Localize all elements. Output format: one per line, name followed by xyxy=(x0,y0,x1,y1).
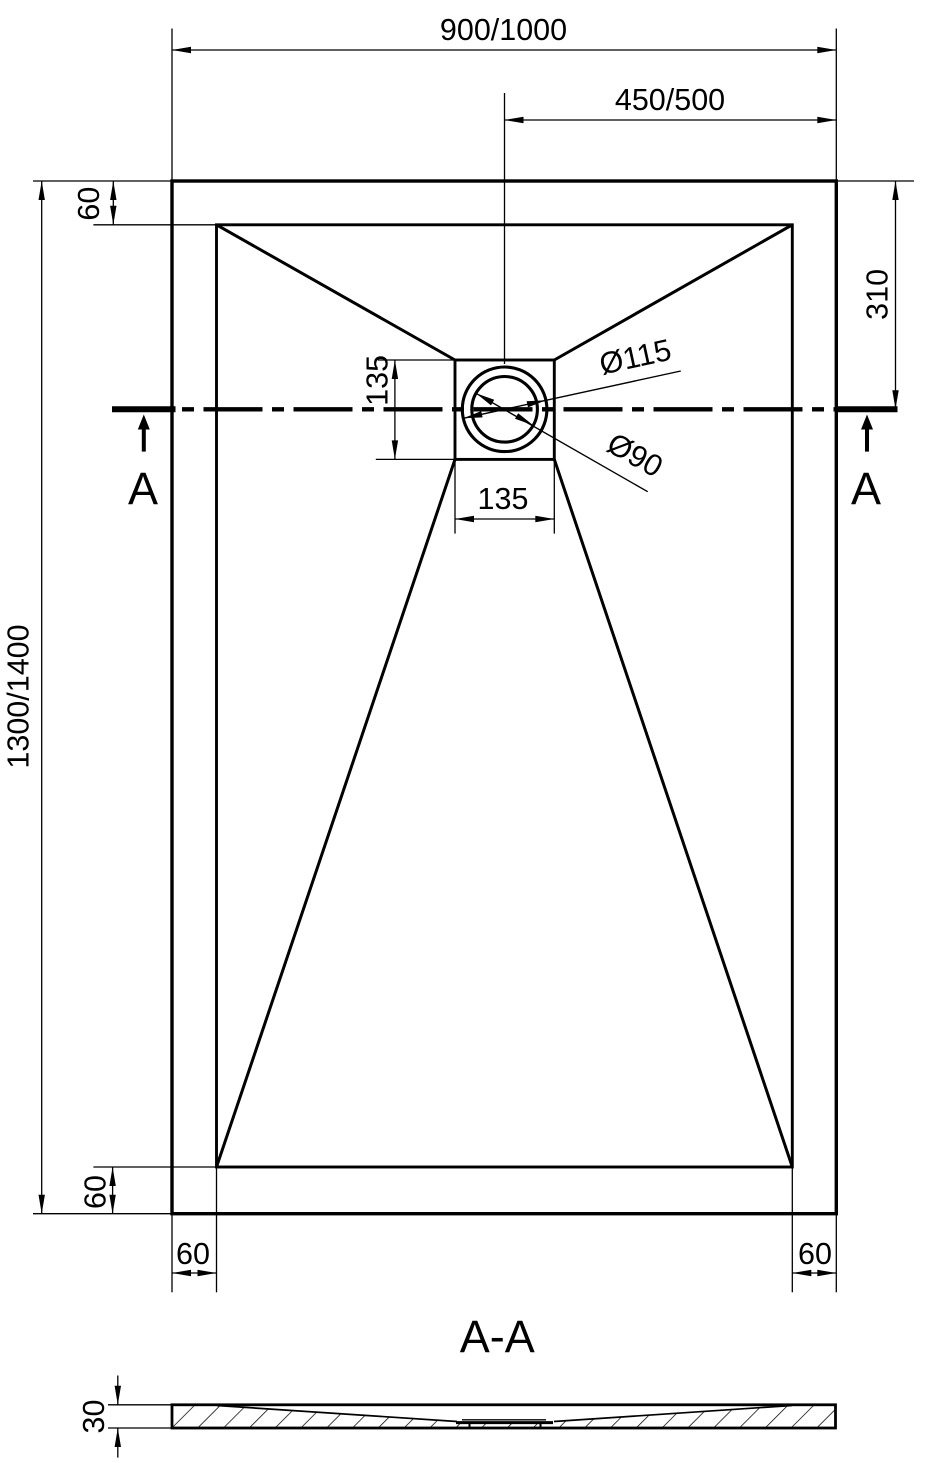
svg-text:60: 60 xyxy=(798,1237,832,1271)
svg-text:60: 60 xyxy=(176,1237,210,1271)
svg-text:450/500: 450/500 xyxy=(615,83,725,117)
svg-text:A-A: A-A xyxy=(460,1311,535,1362)
svg-text:A: A xyxy=(128,463,158,514)
svg-text:310: 310 xyxy=(860,269,894,320)
svg-text:30: 30 xyxy=(77,1400,111,1434)
svg-text:900/1000: 900/1000 xyxy=(440,13,567,47)
svg-text:60: 60 xyxy=(78,1175,112,1209)
svg-text:1300/1400: 1300/1400 xyxy=(2,624,36,768)
svg-text:A: A xyxy=(851,463,881,514)
svg-text:60: 60 xyxy=(72,187,106,221)
svg-text:135: 135 xyxy=(360,355,394,406)
svg-text:135: 135 xyxy=(478,482,529,516)
